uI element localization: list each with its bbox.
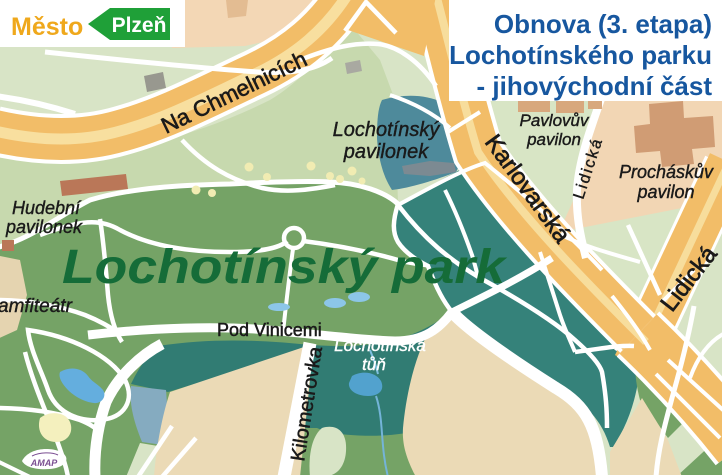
svg-text:Plzeň: Plzeň	[112, 14, 167, 37]
svg-text:Pavlovův: Pavlovův	[520, 111, 590, 130]
svg-text:Pod Vinicemi: Pod Vinicemi	[217, 320, 322, 340]
svg-text:Hudební: Hudební	[12, 198, 82, 218]
svg-text:Město: Město	[11, 13, 83, 41]
svg-text:pavilon: pavilon	[526, 130, 581, 149]
svg-text:- jihovýchodní část: - jihovýchodní část	[477, 71, 713, 101]
svg-text:pavilonek: pavilonek	[5, 217, 83, 237]
svg-text:Lochotínského parku: Lochotínského parku	[449, 40, 712, 70]
svg-text:Lochotínský park: Lochotínský park	[62, 241, 508, 294]
svg-text:AMAP: AMAP	[30, 458, 58, 468]
svg-text:pavilon: pavilon	[636, 182, 694, 202]
svg-text:Lochotínský: Lochotínský	[333, 119, 441, 141]
svg-text:pavilonek: pavilonek	[343, 141, 430, 163]
svg-text:amfiteátr: amfiteátr	[0, 296, 73, 317]
svg-text:Obnova (3. etapa): Obnova (3. etapa)	[494, 9, 712, 39]
svg-text:Lochotínská: Lochotínská	[334, 336, 426, 355]
svg-text:tůň: tůň	[362, 355, 386, 374]
svg-text:Procháskův: Procháskův	[619, 162, 714, 182]
